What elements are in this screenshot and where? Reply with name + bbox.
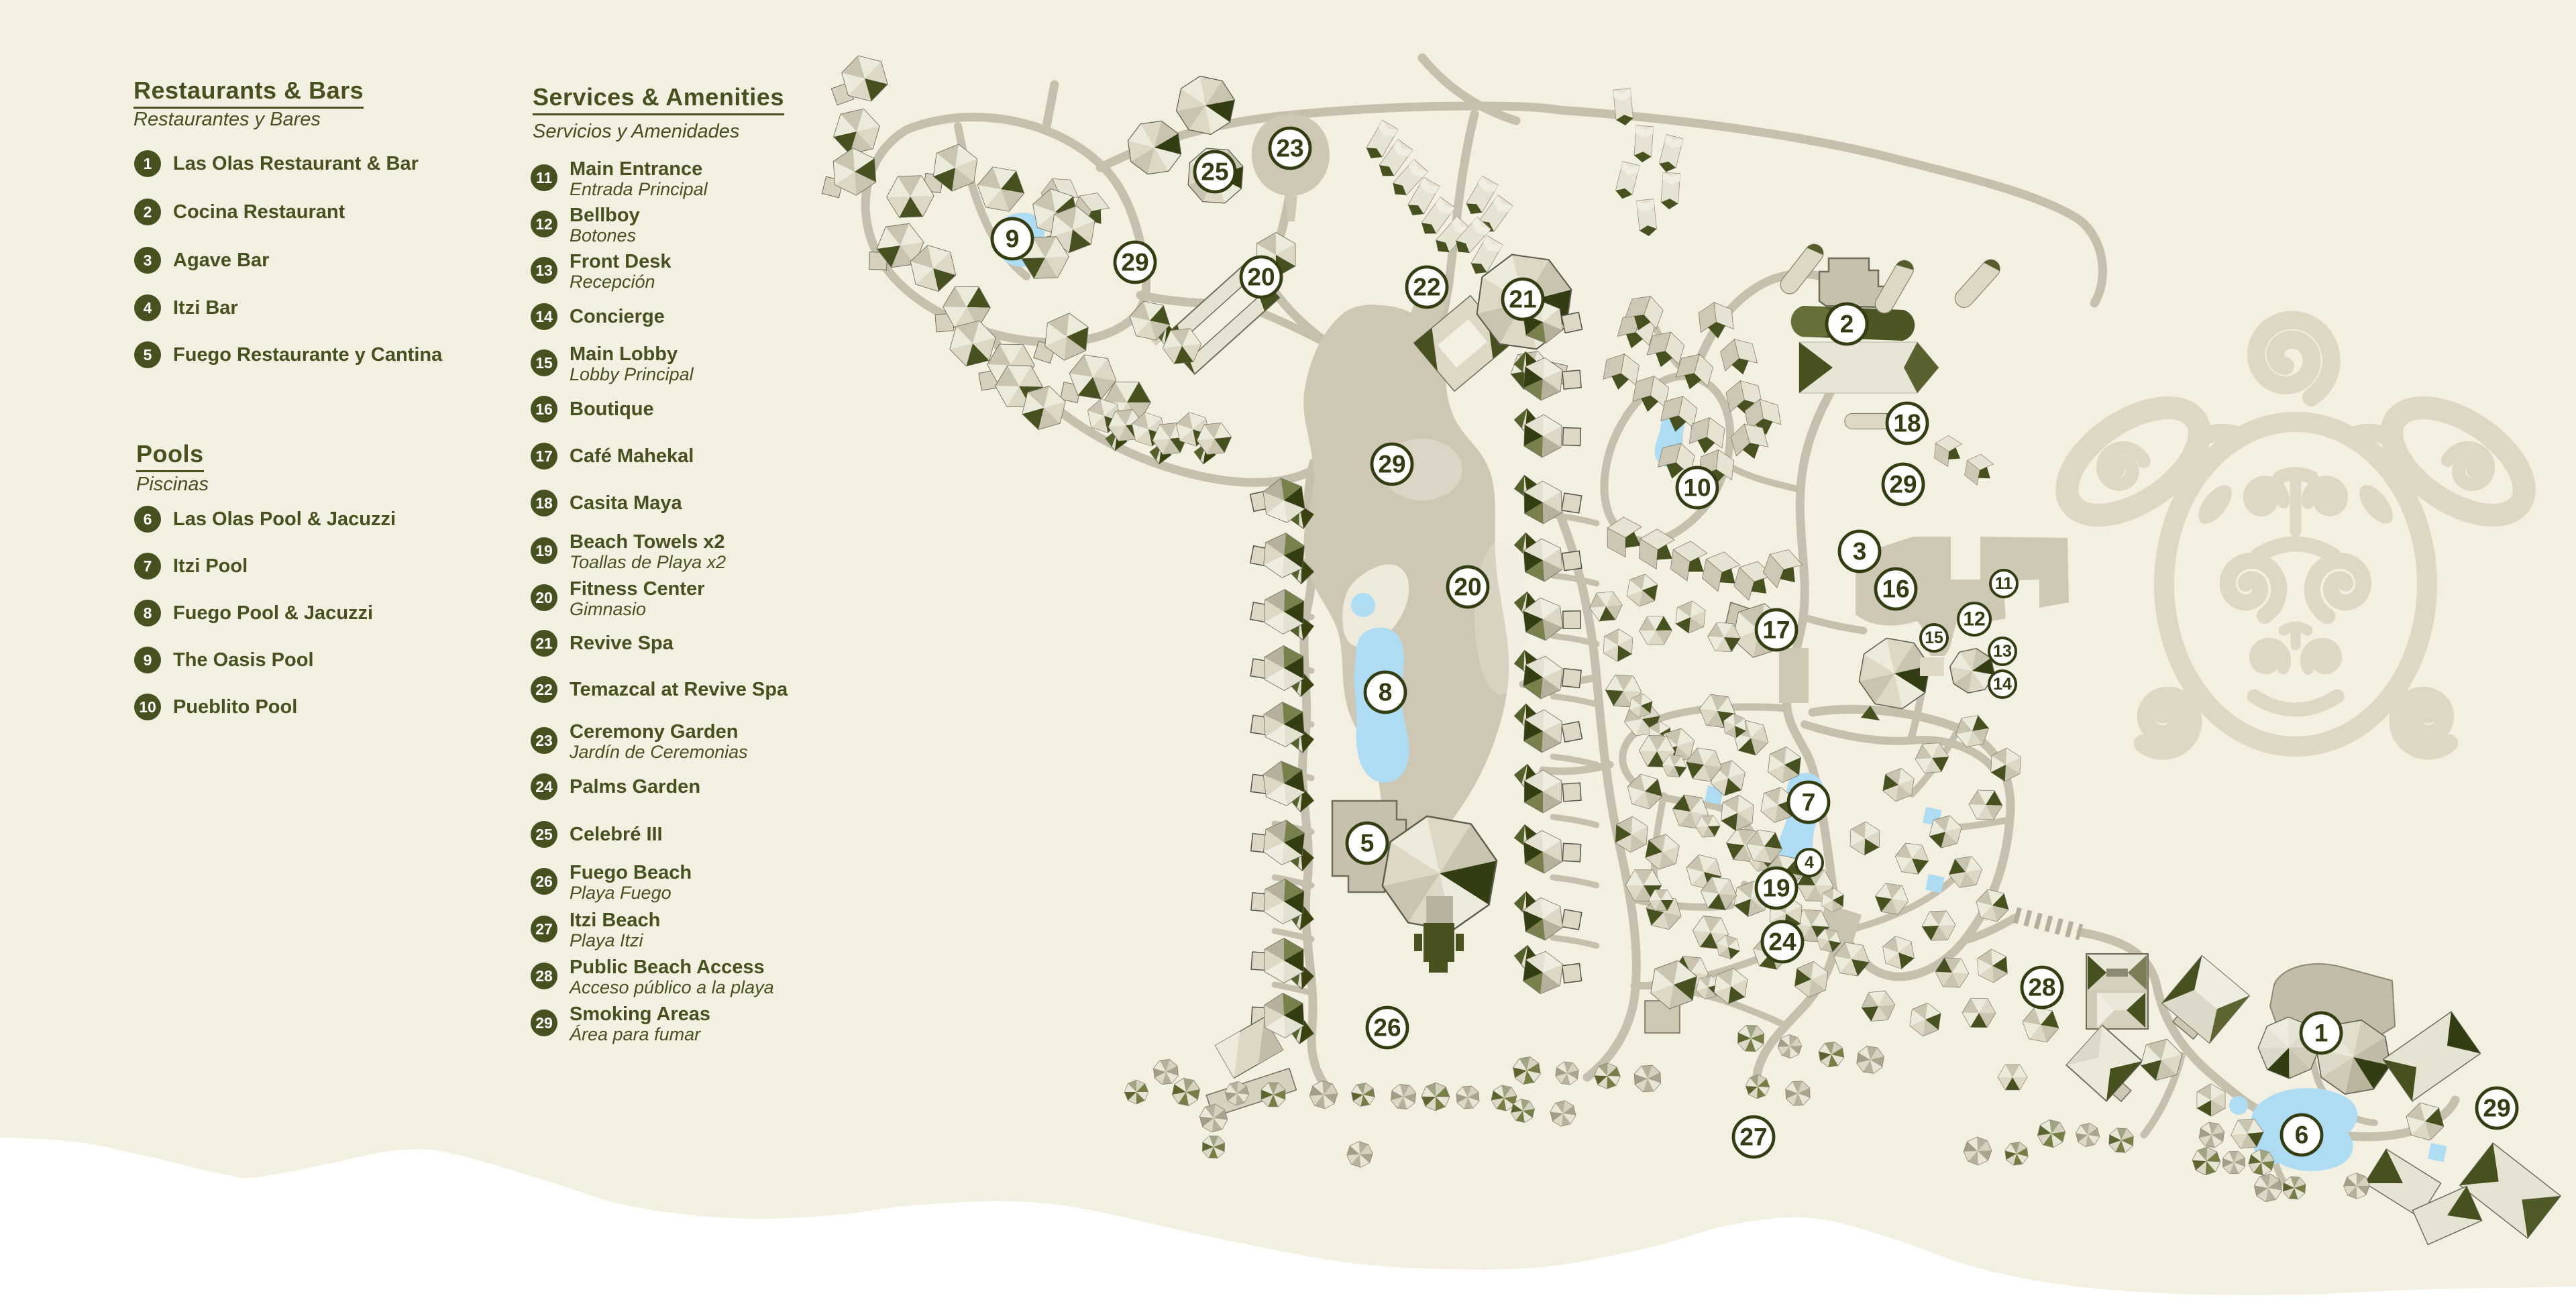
svg-text:16: 16 xyxy=(1882,576,1909,603)
svg-text:13: 13 xyxy=(1993,642,2012,661)
svg-text:26: 26 xyxy=(1373,1014,1401,1042)
svg-text:18: 18 xyxy=(1893,410,1921,437)
svg-text:23: 23 xyxy=(1276,135,1303,162)
svg-text:21: 21 xyxy=(1509,286,1536,313)
svg-text:6: 6 xyxy=(2295,1122,2309,1149)
svg-text:11: 11 xyxy=(1995,574,2013,593)
svg-text:9: 9 xyxy=(1006,225,1020,253)
svg-text:10: 10 xyxy=(1683,474,1711,502)
svg-text:25: 25 xyxy=(1201,158,1228,186)
svg-text:29: 29 xyxy=(2483,1095,2510,1122)
svg-text:27: 27 xyxy=(1739,1124,1767,1151)
svg-text:29: 29 xyxy=(1121,249,1148,276)
svg-text:20: 20 xyxy=(1454,573,1481,601)
svg-text:20: 20 xyxy=(1247,264,1275,291)
svg-text:2: 2 xyxy=(1840,311,1854,338)
svg-text:3: 3 xyxy=(1853,538,1867,565)
svg-text:24: 24 xyxy=(1768,928,1796,956)
svg-text:15: 15 xyxy=(1925,628,1943,647)
svg-text:19: 19 xyxy=(1762,875,1790,902)
svg-text:17: 17 xyxy=(1762,616,1790,644)
svg-text:29: 29 xyxy=(1378,451,1405,478)
svg-text:28: 28 xyxy=(2028,974,2055,1001)
svg-text:7: 7 xyxy=(1802,789,1816,816)
svg-text:8: 8 xyxy=(1379,679,1393,706)
svg-text:5: 5 xyxy=(1360,830,1375,857)
svg-text:29: 29 xyxy=(1889,471,1917,498)
svg-text:22: 22 xyxy=(1413,274,1440,301)
svg-text:12: 12 xyxy=(1963,608,1985,631)
svg-text:4: 4 xyxy=(1805,853,1814,872)
svg-text:14: 14 xyxy=(1993,675,2012,694)
svg-text:1: 1 xyxy=(2314,1020,2328,1047)
